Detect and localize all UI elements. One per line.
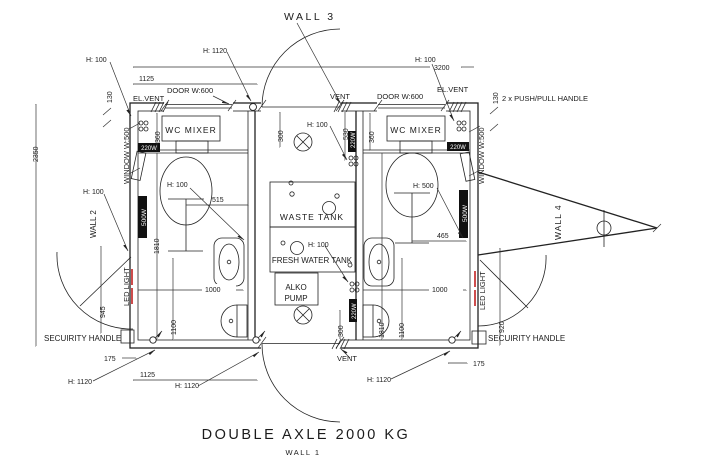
label-wc-mixer-left: WC MIXER <box>165 125 216 135</box>
label-220w-center-upper: 220W <box>351 132 357 148</box>
label-alko: ALKO <box>285 283 306 292</box>
dim-300-bottom: 300 <box>338 325 345 337</box>
dim-360-left: 360 <box>155 131 162 143</box>
dim-130-left: 130 <box>107 91 114 103</box>
label-door-left: DOOR W:600 <box>167 86 213 95</box>
door-swing-arc-right <box>478 255 546 326</box>
dim-3200: 3200 <box>434 65 450 72</box>
dim-1125-bottom: 1125 <box>140 372 155 379</box>
sink-left <box>214 238 244 286</box>
dim-175-right: 175 <box>473 361 485 368</box>
label-h100-center-mid: H: 100 <box>308 242 329 249</box>
label-220w-center-lower: 220W <box>352 303 358 319</box>
dim-1125-top: 1125 <box>139 76 154 83</box>
door-hinge-circle <box>250 104 257 111</box>
socket-left <box>139 121 148 131</box>
security-handle-right-box <box>472 331 486 344</box>
label-h1120-bottom-right: H: 1120 <box>367 377 391 384</box>
dim-1810-left: 1810 <box>154 238 161 254</box>
utility-bay <box>270 133 355 324</box>
label-wall3: WALL 3 <box>284 11 336 23</box>
dim-465: 465 <box>437 233 449 240</box>
dim-1000-right: 1000 <box>432 287 448 294</box>
electrical <box>121 121 486 344</box>
label-vent-top: VENT <box>330 92 350 101</box>
label-window-right: WINDOW W:500 <box>477 127 486 184</box>
label-pump: PUMP <box>284 294 307 303</box>
label-500w-left: 500W <box>141 208 148 226</box>
floor-plan-drawing: WALL 3 H: 1120 H: 100 3200 1125 DOOR W:6… <box>0 0 715 472</box>
label-h1120-top: H: 1120 <box>203 48 227 55</box>
fresh-water-tank-box <box>270 227 355 272</box>
door-swing-arc-top <box>262 29 340 107</box>
socket-right <box>457 121 466 131</box>
trailer-walls <box>130 103 478 348</box>
label-window-left: WINDOW W:500 <box>122 127 131 184</box>
dim-1100-right: 1100 <box>399 323 406 338</box>
label-security-handle-left: SECUIRITY HANDLE <box>44 334 121 343</box>
dim-945: 945 <box>100 306 107 318</box>
label-wall2: WALL 2 <box>89 210 98 238</box>
label-h500-right-room: H: 500 <box>413 183 434 190</box>
basin-right <box>363 305 373 337</box>
vents <box>151 102 466 349</box>
window-pane-right <box>460 152 475 181</box>
drawbar-hitch <box>478 172 661 255</box>
dim-1100-left: 1100 <box>171 320 178 335</box>
label-wall4: WALL 4 <box>553 204 563 240</box>
label-wall1: WALL 1 <box>285 448 320 457</box>
socket-center-lower <box>350 282 359 292</box>
dim-1000-left: 1000 <box>205 287 221 294</box>
right-toilet-room <box>363 116 445 337</box>
basin-left <box>237 305 247 337</box>
label-h1120-bottom-center: H: 1120 <box>175 383 199 390</box>
label-500w-right: 500W <box>462 204 469 222</box>
label-h1120-bottom-left: H: 1120 <box>68 379 92 386</box>
label-waste-tank: WASTE TANK <box>280 212 344 222</box>
label-fresh-water-tank: FRESH WATER TANK <box>272 256 353 265</box>
label-h100-top-left: H: 100 <box>86 57 107 64</box>
label-led-light-right: LED LIGHT <box>478 271 487 310</box>
label-el-vent-right: EL.VENT <box>437 85 469 94</box>
label-h100-top-right: H: 100 <box>415 57 436 64</box>
floor-plan-page: WALL 3 H: 1120 H: 100 3200 1125 DOOR W:6… <box>0 0 715 472</box>
dim-515: 515 <box>212 197 224 204</box>
dim-130-right: 130 <box>493 92 500 104</box>
label-security-handle-right: SECUIRITY HANDLE <box>488 334 565 343</box>
label-door-right: DOOR W:600 <box>377 92 423 101</box>
label-220w-left: 220W <box>141 146 157 152</box>
dim-2350: 2350 <box>33 146 40 162</box>
label-220w-right: 220W <box>450 145 466 151</box>
dim-530: 530 <box>343 128 350 140</box>
label-wc-mixer-right: WC MIXER <box>390 125 441 135</box>
ceiling-lamp-bottom <box>294 306 312 324</box>
dim-1810-right: 1810 <box>379 322 386 338</box>
label-h100-left-mid: H: 100 <box>83 189 104 196</box>
window-pane-left <box>131 151 146 180</box>
security-handle-left-box <box>121 330 134 343</box>
label-led-light-left: LED LIGHT <box>122 267 131 306</box>
label-h100-left-room: H: 100 <box>167 182 188 189</box>
door-swing-arc-bottom <box>262 344 340 422</box>
dim-920: 920 <box>499 321 506 333</box>
ceiling-lamp-top <box>294 133 312 151</box>
label-el-vent-left: EL.VENT <box>133 94 165 103</box>
label-push-pull-handle: 2 x PUSH/PULL HANDLE <box>502 94 588 103</box>
drawing-title: DOUBLE AXLE 2000 KG <box>202 427 411 443</box>
label-vent-bottom: VENT <box>337 354 357 363</box>
dim-175-left: 175 <box>104 356 116 363</box>
label-h100-center-top: H: 100 <box>307 122 328 129</box>
dim-360-right: 360 <box>369 131 376 143</box>
sink-right <box>364 238 394 286</box>
dim-300-top: 300 <box>278 130 285 142</box>
